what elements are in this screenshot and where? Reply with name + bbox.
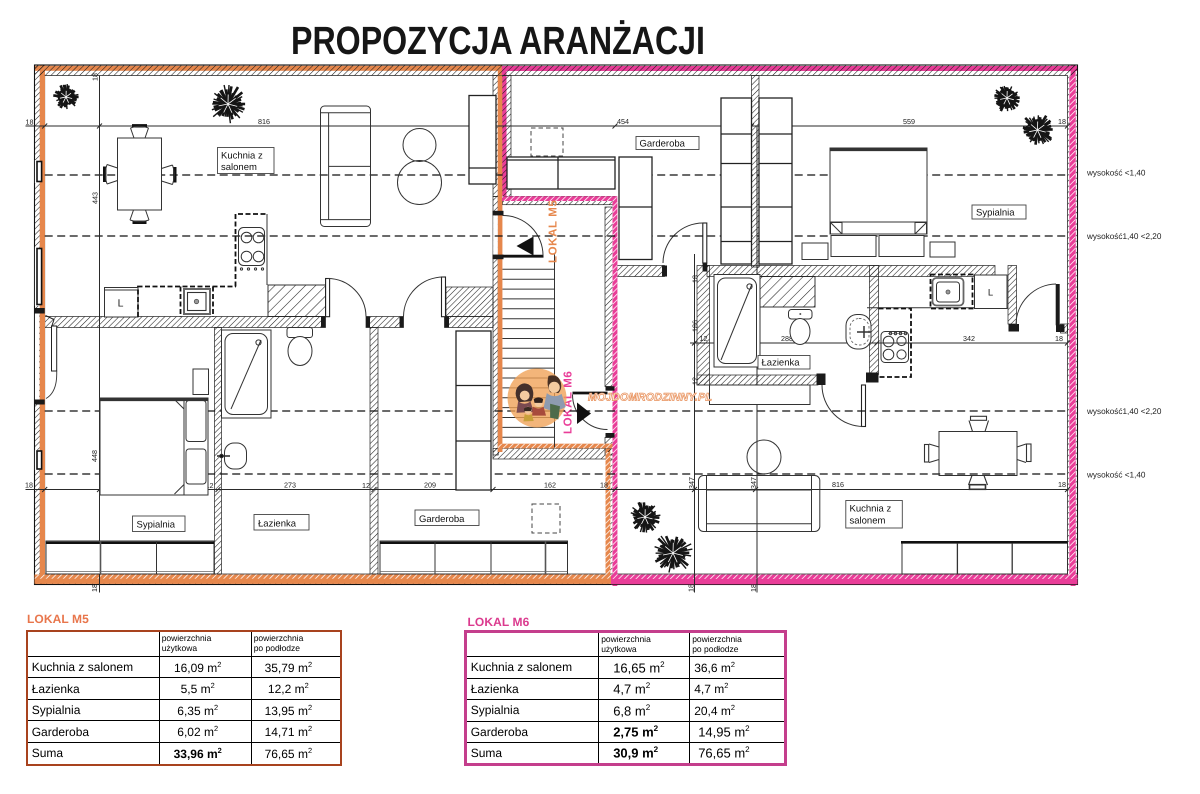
svg-text:18: 18 bbox=[687, 584, 696, 592]
svg-text:Garderoba: Garderoba bbox=[419, 514, 465, 525]
svg-text:PROPOZYCJA ARANŻACJI: PROPOZYCJA ARANŻACJI bbox=[291, 19, 705, 63]
svg-text:18: 18 bbox=[600, 481, 608, 490]
svg-text:342: 342 bbox=[963, 334, 975, 343]
svg-text:salonem: salonem bbox=[850, 516, 886, 527]
svg-text:209: 209 bbox=[424, 481, 436, 490]
svg-text:Garderoba: Garderoba bbox=[640, 139, 686, 150]
svg-text:wysokość1,40 <2,20: wysokość1,40 <2,20 bbox=[1086, 407, 1162, 416]
svg-text:12: 12 bbox=[691, 377, 700, 385]
svg-text:12: 12 bbox=[700, 334, 708, 343]
svg-text:Łazienka: Łazienka bbox=[258, 519, 297, 530]
svg-text:L: L bbox=[988, 288, 993, 299]
svg-text:LOKAL M5: LOKAL M5 bbox=[548, 200, 560, 263]
svg-text:186: 186 bbox=[691, 320, 700, 332]
svg-text:18: 18 bbox=[749, 584, 758, 592]
svg-text:Łazienka: Łazienka bbox=[762, 358, 801, 369]
svg-text:MOJDOMRODZINNY.PL: MOJDOMRODZINNY.PL bbox=[588, 392, 712, 404]
svg-text:347: 347 bbox=[749, 477, 758, 489]
svg-text:18: 18 bbox=[1058, 117, 1066, 126]
svg-text:559: 559 bbox=[903, 117, 915, 126]
svg-text:18: 18 bbox=[91, 73, 100, 81]
svg-text:18: 18 bbox=[691, 275, 700, 283]
svg-text:Kuchnia z: Kuchnia z bbox=[850, 504, 892, 515]
svg-text:273: 273 bbox=[284, 481, 296, 490]
svg-text:Sypialnia: Sypialnia bbox=[976, 208, 1015, 219]
svg-text:18: 18 bbox=[25, 481, 33, 490]
svg-text:L: L bbox=[118, 298, 124, 310]
svg-text:Sypialnia: Sypialnia bbox=[137, 520, 176, 531]
svg-text:wysokość <1,40: wysokość <1,40 bbox=[1086, 169, 1146, 178]
svg-text:454: 454 bbox=[617, 117, 629, 126]
svg-text:12: 12 bbox=[362, 481, 370, 490]
svg-text:816: 816 bbox=[832, 480, 844, 489]
svg-text:18: 18 bbox=[1058, 480, 1066, 489]
svg-text:18: 18 bbox=[26, 118, 34, 127]
svg-text:18: 18 bbox=[1055, 334, 1063, 343]
svg-text:448: 448 bbox=[90, 450, 99, 462]
svg-text:816: 816 bbox=[258, 117, 270, 126]
svg-text:wysokość1,40 <2,20: wysokość1,40 <2,20 bbox=[1086, 232, 1162, 241]
svg-text:347: 347 bbox=[687, 477, 696, 489]
svg-text:wysokość <1,40: wysokość <1,40 bbox=[1086, 471, 1146, 480]
svg-text:salonem: salonem bbox=[221, 162, 257, 173]
svg-text:Kuchnia z: Kuchnia z bbox=[221, 151, 263, 162]
svg-text:443: 443 bbox=[91, 192, 100, 204]
svg-text:162: 162 bbox=[544, 481, 556, 490]
svg-text:18: 18 bbox=[90, 584, 99, 592]
